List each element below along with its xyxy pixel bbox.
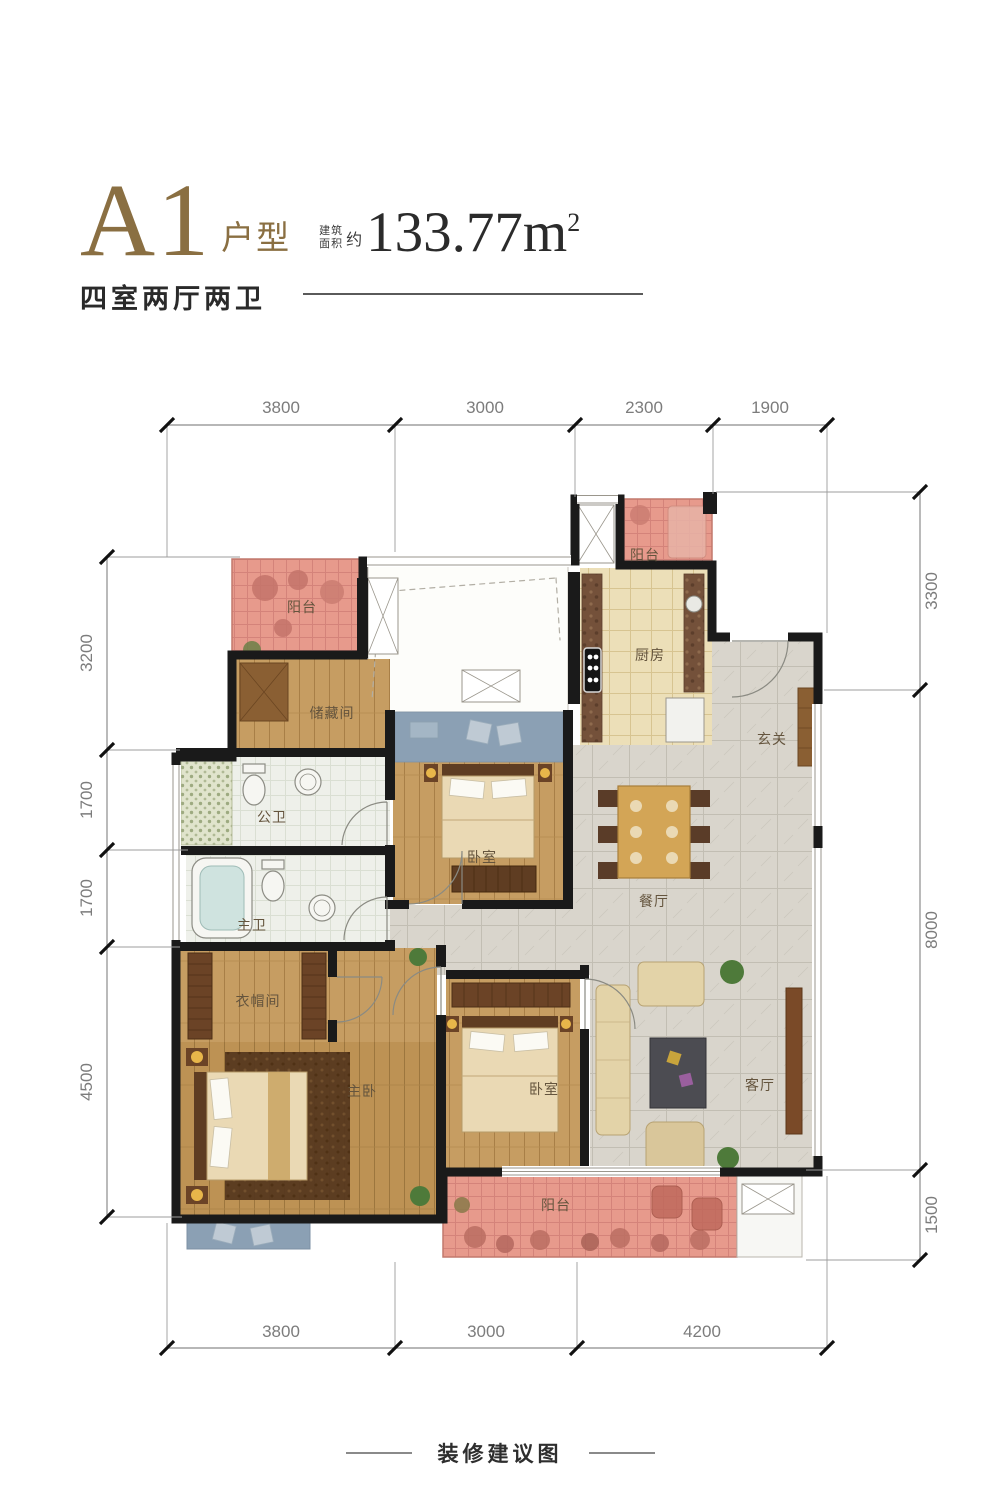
dim-top-3: 2300	[625, 398, 663, 417]
bedroom-south-furniture	[446, 983, 573, 1132]
shower-mosaic	[181, 759, 232, 845]
dim-right-1: 3300	[922, 572, 941, 610]
dim-bottom-1: 3800	[262, 1322, 300, 1341]
floor-plan: 阳台 阳台 储藏间 厨房 玄关 公卫 主卫 卧室 餐厅 衣帽间 主卧 卧室 客厅…	[0, 0, 1000, 1500]
fridge-icon	[666, 698, 704, 742]
plant-icon	[717, 1147, 739, 1169]
plant-icon	[720, 960, 744, 984]
room-label-master-bedroom: 主卧	[347, 1083, 377, 1099]
caption-line-left	[346, 1452, 412, 1454]
dining-set	[598, 786, 710, 879]
tv-cabinet	[786, 988, 802, 1134]
room-label-dining: 餐厅	[639, 893, 669, 909]
room-label-bedroom-south: 卧室	[529, 1081, 559, 1097]
kitchen-sink-icon	[686, 596, 702, 612]
shoe-cabinet	[798, 688, 814, 766]
plant-icon	[409, 948, 427, 966]
room-label-kitchen: 厨房	[635, 647, 665, 663]
room-label-closet: 衣帽间	[236, 993, 281, 1009]
dim-top-1: 3800	[262, 398, 300, 417]
dim-left-3: 1700	[77, 879, 96, 917]
room-label-foyer: 玄关	[757, 731, 787, 747]
room-label-storage: 储藏间	[310, 705, 355, 721]
coffee-table	[650, 1038, 706, 1108]
dim-top-4: 1900	[751, 398, 789, 417]
room-label-balcony-top-right: 阳台	[630, 547, 660, 563]
room-label-balcony-bottom: 阳台	[541, 1197, 571, 1213]
footer-caption: 装修建议图	[0, 1438, 1000, 1468]
storage-cabinet	[240, 663, 288, 721]
dim-bottom-3: 4200	[683, 1322, 721, 1341]
room-label-bath-master: 主卫	[237, 917, 267, 933]
caption-line-right	[589, 1452, 655, 1454]
dim-right-3: 1500	[922, 1196, 941, 1234]
room-label-balcony-top-left: 阳台	[287, 599, 317, 615]
dim-right-2: 8000	[922, 911, 941, 949]
dim-left-4: 4500	[77, 1063, 96, 1101]
plant-icon	[410, 1186, 430, 1206]
dim-left-1: 3200	[77, 634, 96, 672]
room-label-bedroom-middle: 卧室	[467, 849, 497, 865]
dim-bottom-2: 3000	[467, 1322, 505, 1341]
dim-left-2: 1700	[77, 781, 96, 819]
room-label-living: 客厅	[745, 1077, 775, 1093]
stove-icon	[584, 648, 601, 692]
caption-text: 装修建议图	[438, 1438, 563, 1468]
dim-top-2: 3000	[466, 398, 504, 417]
room-label-bath-public: 公卫	[257, 809, 287, 825]
